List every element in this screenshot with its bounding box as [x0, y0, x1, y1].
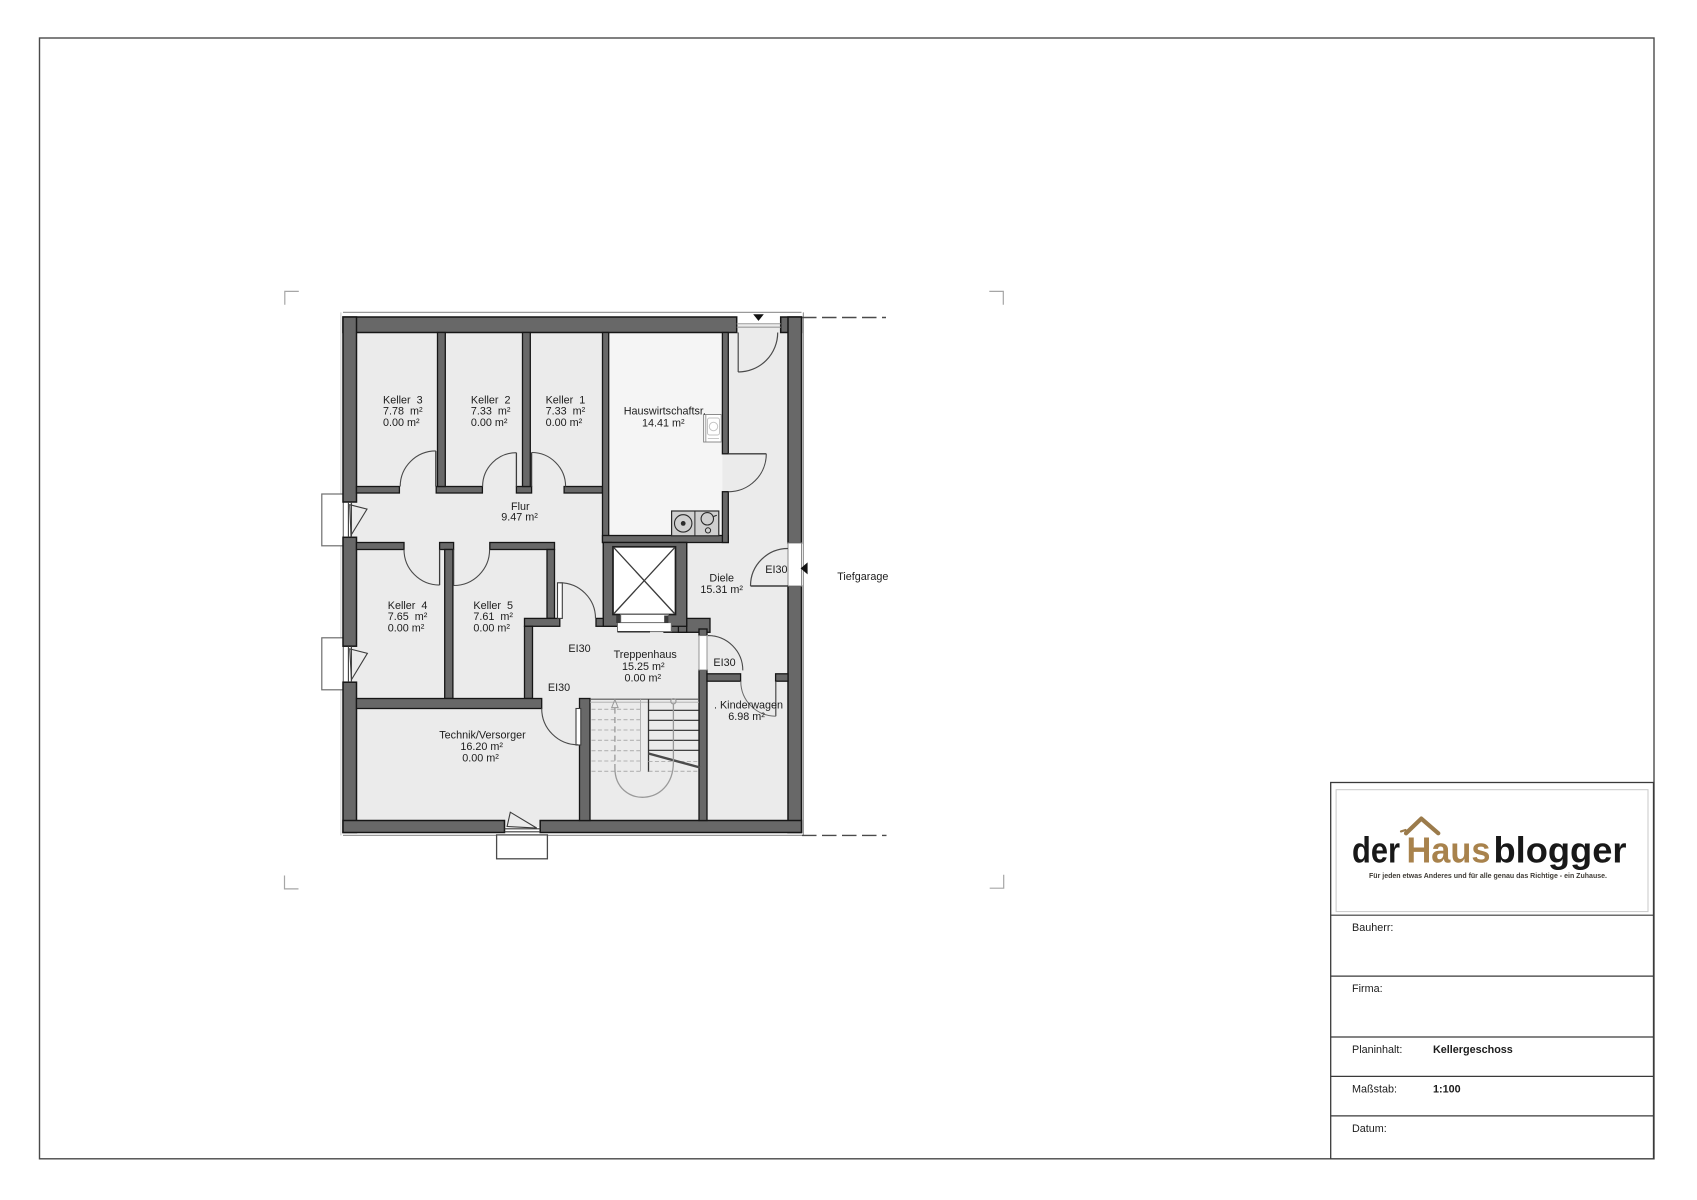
svg-text:0.00 m²: 0.00 m² [473, 623, 510, 635]
svg-text:7.78 m²: 7.78 m² [383, 406, 423, 418]
svg-text:Keller 4: Keller 4 [388, 600, 428, 612]
svg-text:14.41 m²: 14.41 m² [642, 418, 685, 430]
svg-text:0.00 m²: 0.00 m² [624, 672, 661, 684]
svg-text:7.33 m²: 7.33 m² [471, 406, 511, 418]
svg-text:Keller 1: Keller 1 [546, 394, 586, 406]
svg-text:9.47 m²: 9.47 m² [501, 512, 538, 524]
svg-text:Tiefgarage: Tiefgarage [837, 571, 888, 583]
svg-text:Technik/Versorger: Technik/Versorger [439, 729, 526, 741]
svg-text:0.00 m²: 0.00 m² [388, 623, 425, 635]
svg-text:. Kinderwagen: . Kinderwagen [714, 700, 783, 712]
svg-text:Maßstab:: Maßstab: [1352, 1084, 1397, 1096]
svg-text:EI30: EI30 [568, 643, 590, 655]
svg-text:Planinhalt:: Planinhalt: [1352, 1044, 1402, 1056]
svg-text:0.00 m²: 0.00 m² [383, 417, 420, 429]
svg-text:Diele: Diele [709, 573, 734, 585]
svg-text:Keller 2: Keller 2 [471, 394, 511, 406]
svg-text:EI30: EI30 [548, 682, 570, 694]
svg-text:1:100: 1:100 [1433, 1084, 1461, 1096]
svg-text:16.20 m²: 16.20 m² [460, 741, 503, 753]
svg-text:Firma:: Firma: [1352, 983, 1383, 995]
svg-text:7.65 m²: 7.65 m² [388, 611, 428, 623]
svg-text:0.00 m²: 0.00 m² [546, 417, 583, 429]
svg-text:Kellergeschoss: Kellergeschoss [1433, 1044, 1513, 1056]
svg-text:7.33 m²: 7.33 m² [546, 406, 586, 418]
svg-text:Treppenhaus: Treppenhaus [614, 649, 678, 661]
svg-text:0.00 m²: 0.00 m² [462, 753, 499, 765]
svg-text:15.31 m²: 15.31 m² [700, 584, 743, 596]
svg-text:Keller 5: Keller 5 [473, 600, 513, 612]
svg-text:7.61 m²: 7.61 m² [473, 611, 513, 623]
svg-text:6.98 m²: 6.98 m² [728, 711, 765, 723]
svg-text:0.00 m²: 0.00 m² [471, 417, 508, 429]
svg-text:Datum:: Datum: [1352, 1123, 1387, 1135]
svg-text:Keller 3: Keller 3 [383, 394, 423, 406]
svg-text:derHausblogger: derHausblogger [1352, 830, 1627, 871]
svg-text:Hauswirtschaftsr.: Hauswirtschaftsr. [624, 406, 706, 418]
svg-text:Für jeden etwas Anderes und fü: Für jeden etwas Anderes und für alle gen… [1369, 871, 1607, 880]
svg-text:EI30: EI30 [713, 657, 735, 669]
svg-text:Bauherr:: Bauherr: [1352, 922, 1393, 934]
svg-text:EI30: EI30 [765, 564, 787, 576]
